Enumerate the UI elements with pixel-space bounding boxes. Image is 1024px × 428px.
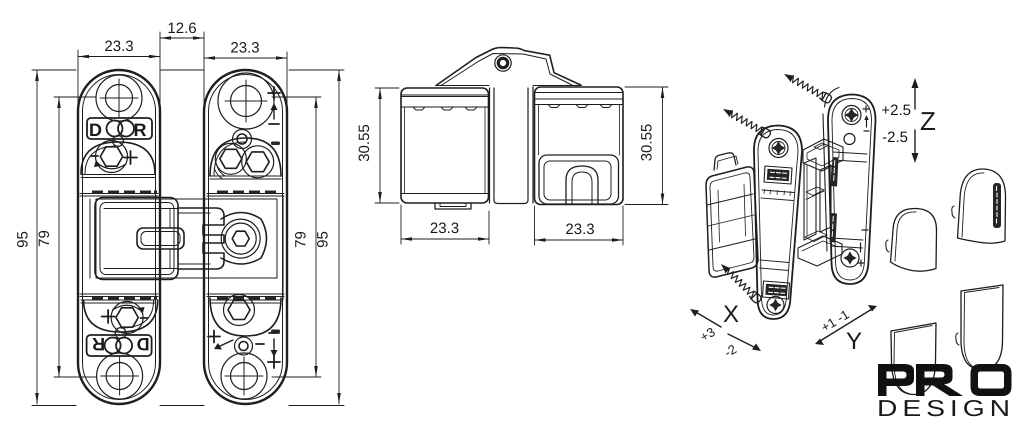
svg-text:+2.5: +2.5 [881, 102, 911, 119]
svg-text:X: X [723, 301, 739, 328]
svg-text:79: 79 [36, 230, 53, 247]
svg-text:79: 79 [293, 231, 310, 248]
svg-text:12.6: 12.6 [167, 20, 196, 37]
svg-text:23.3: 23.3 [230, 40, 259, 57]
svg-text:30.55: 30.55 [356, 124, 373, 162]
svg-text:23.3: 23.3 [565, 221, 594, 238]
svg-text:23.3: 23.3 [104, 38, 133, 55]
svg-text:Z: Z [920, 106, 936, 136]
svg-text:-2.5: -2.5 [882, 129, 908, 146]
svg-text:DESIGN: DESIGN [877, 395, 1015, 421]
svg-text:23.3: 23.3 [430, 220, 459, 237]
svg-text:30.55: 30.55 [639, 124, 656, 162]
svg-text:Y: Y [846, 328, 862, 355]
svg-text:D: D [89, 120, 102, 140]
svg-text:95: 95 [15, 231, 32, 248]
svg-text:95: 95 [315, 231, 332, 248]
svg-text:R: R [134, 120, 147, 140]
